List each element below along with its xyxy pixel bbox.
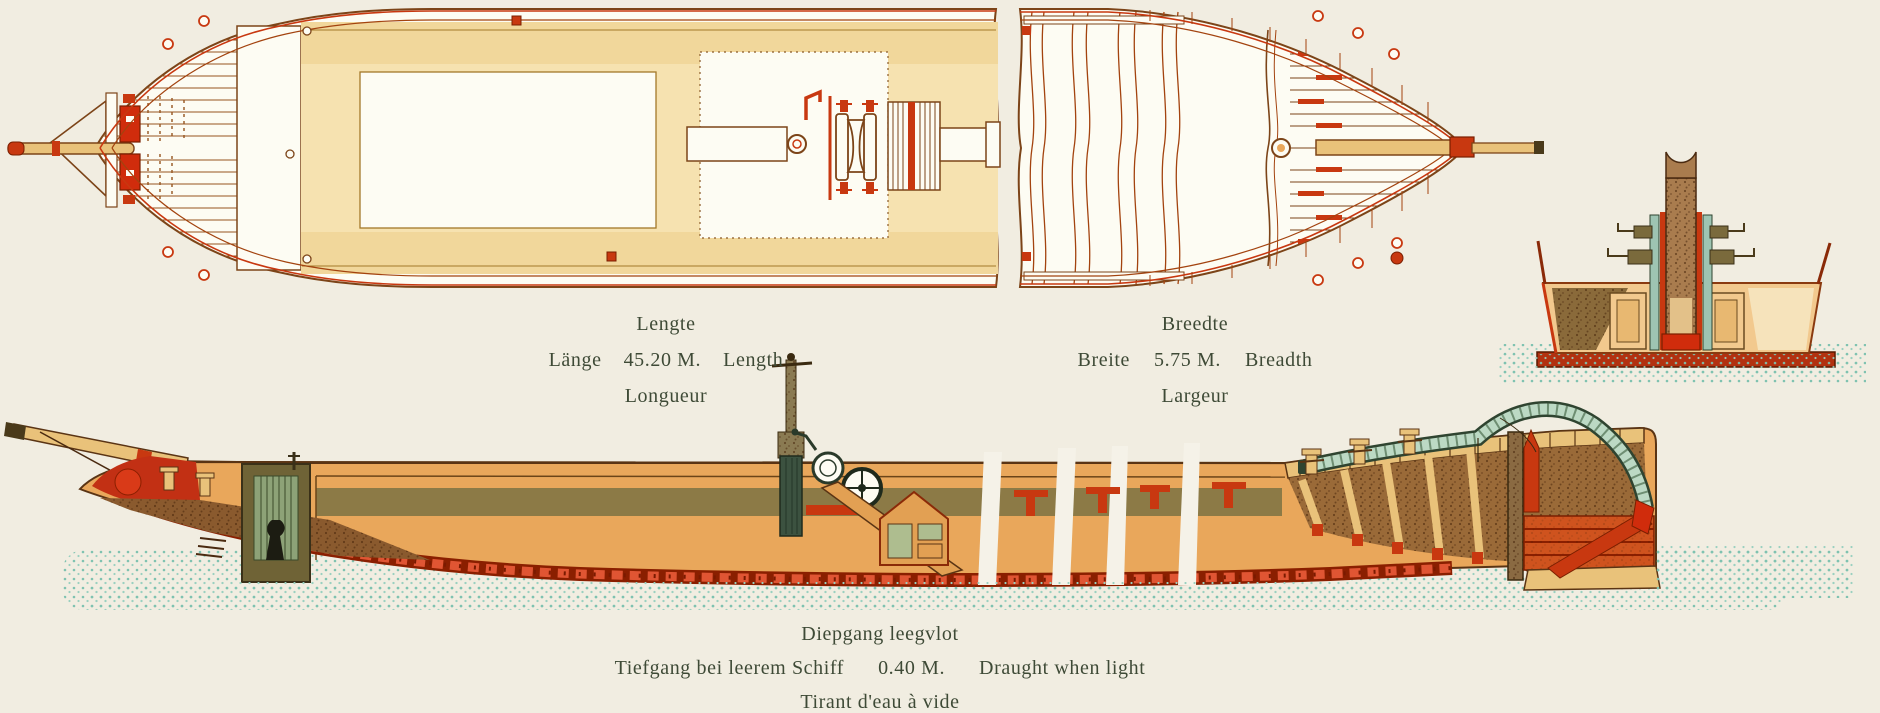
bow-bulkhead-panel <box>237 26 301 270</box>
winch-house <box>242 452 310 582</box>
length-label-french: Longueur <box>538 385 795 407</box>
draught-value: 0.40 M. <box>878 657 945 679</box>
plate-drawing <box>0 0 1880 713</box>
mast-green <box>780 456 802 536</box>
length-label-german: Länge <box>549 349 602 371</box>
breadth-label-german: Breite <box>1078 349 1130 371</box>
breadth-label-dutch: Breedte <box>1066 313 1325 335</box>
lithograph-plate: Lengte Länge 45.20 M. Length Longueur Br… <box>0 0 1880 713</box>
length-label-block: Lengte Länge 45.20 M. Length Longueur <box>538 313 795 421</box>
breadth-label-block: Breedte Breite 5.75 M. Breadth Largeur <box>1066 313 1325 421</box>
draught-label-french: Tirant d'eau à vide <box>598 691 1163 713</box>
plan-view <box>8 9 1544 287</box>
length-label-dutch: Lengte <box>538 313 795 335</box>
pulley-wheel-small <box>813 453 843 483</box>
draught-label-dutch: Diepgang leegvlot <box>598 623 1163 645</box>
plan-tiller <box>1290 137 1544 157</box>
breadth-value: 5.75 M. <box>1154 349 1221 371</box>
draught-label-english: Draught when light <box>979 657 1145 679</box>
breadth-label-english: Breadth <box>1245 349 1313 371</box>
draught-label-block: Diepgang leegvlot Tiefgang bei leerem Sc… <box>598 623 1163 713</box>
water-front <box>88 582 1512 610</box>
cross-section-view <box>1498 152 1866 384</box>
length-value: 45.20 M. <box>624 349 702 371</box>
length-label-english: Length <box>723 349 783 371</box>
roller-block <box>888 102 940 190</box>
capstan-beam-left <box>687 127 787 161</box>
cargo-hold-opening <box>360 72 656 228</box>
side-elevation-view <box>4 353 1854 610</box>
rudder-post <box>1524 430 1539 512</box>
draught-label-german: Tiefgang bei leerem Schiff <box>615 657 844 679</box>
capstan-beam-right <box>940 128 992 161</box>
breadth-label-french: Largeur <box>1066 385 1325 407</box>
